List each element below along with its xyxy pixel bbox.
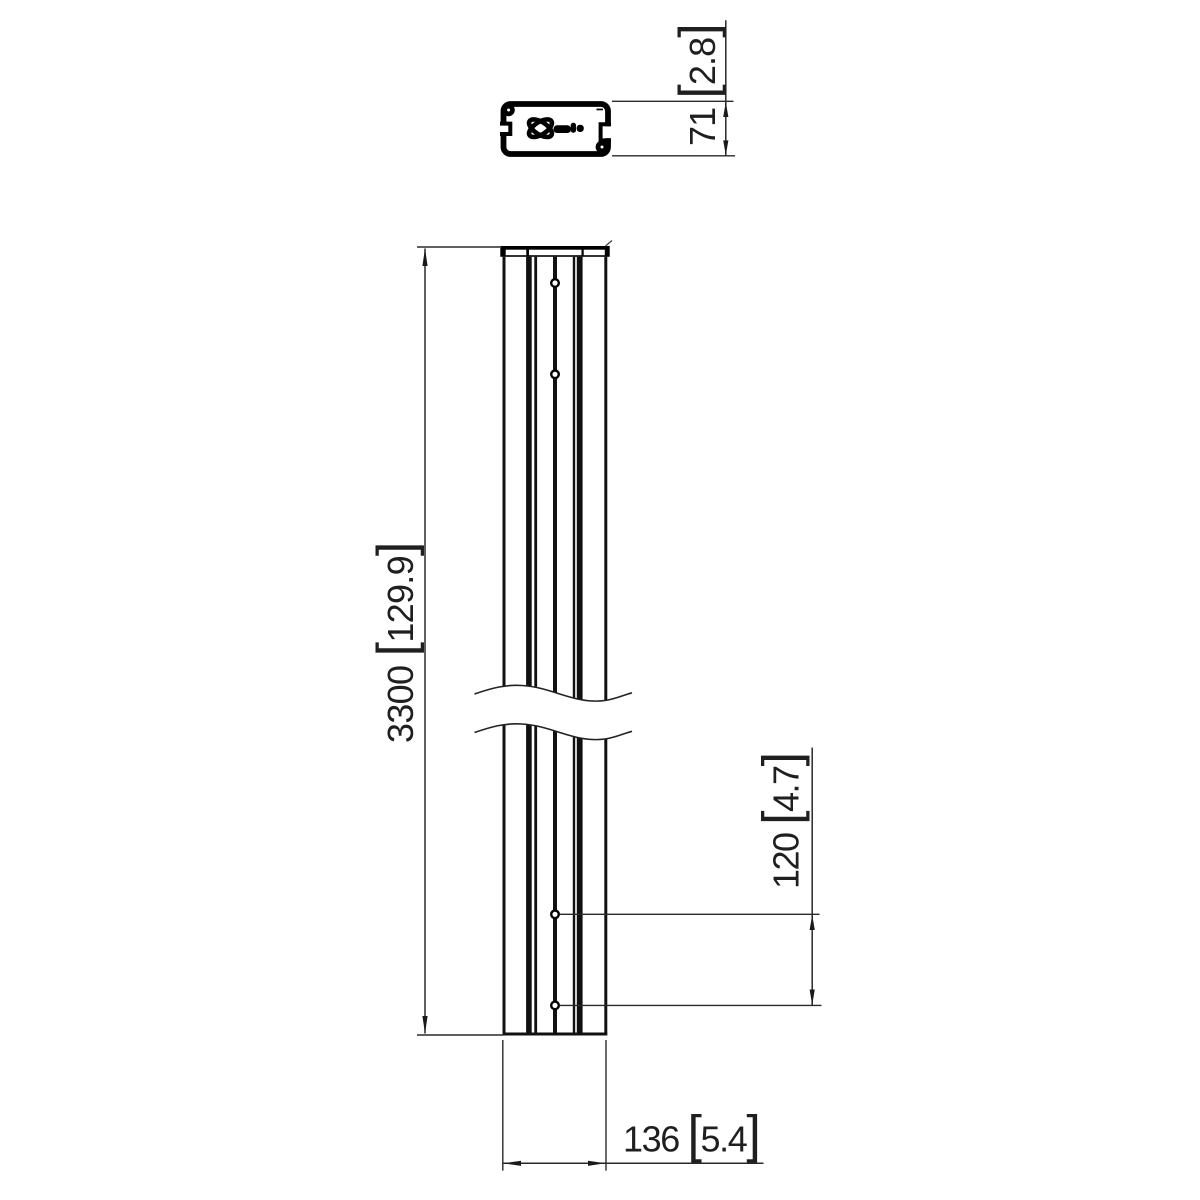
svg-text:120 [4.7]: 120 [4.7] [753,753,811,889]
svg-text:136 [5.4]: 136 [5.4] [623,1106,759,1164]
svg-text:3300 [129.9]: 3300 [129.9] [367,542,425,743]
svg-text:71 [2.8]: 71 [2.8] [669,24,727,146]
